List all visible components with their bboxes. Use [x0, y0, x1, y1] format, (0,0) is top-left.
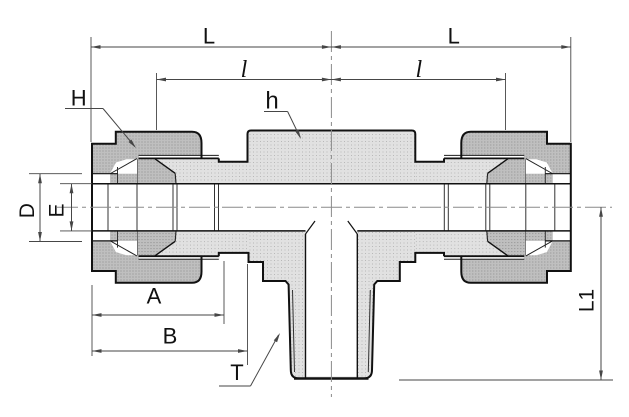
svg-text:h: h — [265, 88, 278, 115]
svg-text:D: D — [16, 203, 39, 218]
svg-text:T: T — [230, 360, 243, 385]
svg-text:E: E — [46, 203, 69, 217]
svg-text:l: l — [415, 57, 422, 83]
svg-text:A: A — [147, 284, 162, 309]
svg-text:l: l — [241, 57, 248, 83]
svg-text:H: H — [71, 86, 87, 111]
svg-text:L: L — [203, 24, 215, 49]
svg-text:L: L — [448, 24, 460, 49]
svg-text:L1: L1 — [576, 289, 599, 312]
svg-text:B: B — [163, 324, 178, 349]
